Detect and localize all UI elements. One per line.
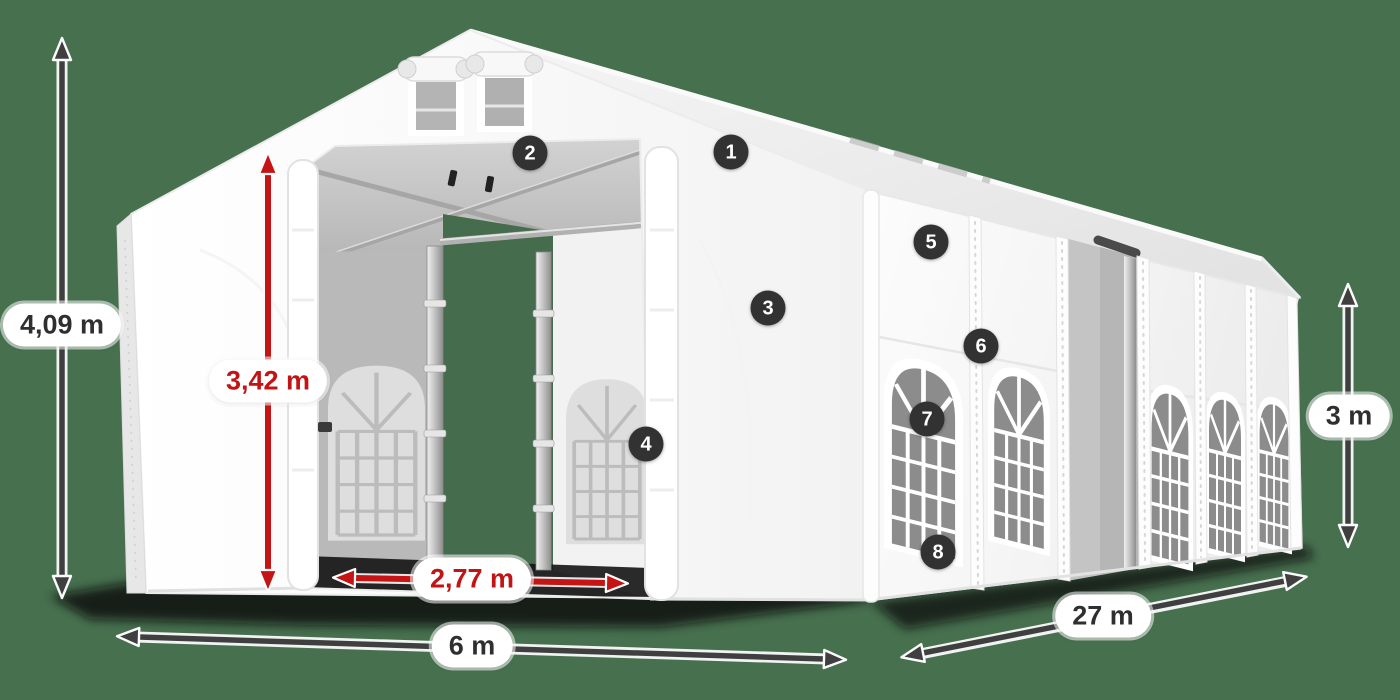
feature-marker-5: 5 bbox=[914, 225, 949, 260]
feature-marker-3: 3 bbox=[751, 291, 786, 326]
feature-marker-2: 2 bbox=[513, 136, 548, 171]
side-entrance-opening bbox=[1065, 238, 1140, 581]
feature-marker-6: 6 bbox=[964, 329, 999, 364]
dimension-label-entrance-width: 2,77 m bbox=[413, 558, 531, 601]
dimension-label-width: 6 m bbox=[432, 625, 513, 668]
feature-marker-8: 8 bbox=[921, 535, 956, 570]
feature-marker-7: 7 bbox=[910, 402, 945, 437]
corner-pole bbox=[863, 190, 879, 602]
tent-illustration bbox=[0, 0, 1400, 700]
dimension-label-entrance-height: 3,42 m bbox=[209, 360, 327, 403]
feature-marker-1: 1 bbox=[714, 135, 749, 170]
product-dimension-diagram: 4,09 m 3,42 m 2,77 m 6 m 27 m 3 m 1 2 3 … bbox=[0, 0, 1400, 700]
feature-marker-4: 4 bbox=[629, 427, 664, 462]
tent-interior bbox=[300, 130, 660, 610]
dimension-label-length: 27 m bbox=[1055, 595, 1151, 638]
dimension-label-side-height: 3 m bbox=[1309, 395, 1390, 438]
dimension-label-total-height: 4,09 m bbox=[3, 304, 121, 347]
